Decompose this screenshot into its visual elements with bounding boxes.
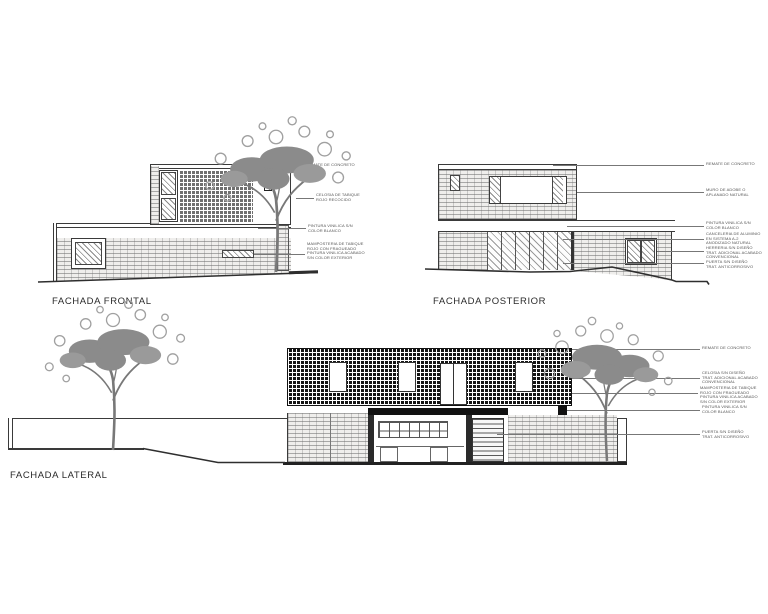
- rear-callout-leader-3: [567, 226, 704, 227]
- side-brick-wall-right: [508, 415, 617, 462]
- elevation-drawing-canvas: REMATE DE CONCRETO CELOSIA DE TABIQUE RO…: [0, 0, 768, 614]
- front-callout-leader-4: [254, 254, 305, 255]
- side-door-panel-1: [380, 447, 398, 462]
- rear-callout-leader-1: [553, 165, 704, 166]
- front-band-line: [56, 227, 291, 228]
- side-wall-left-end: [8, 418, 13, 449]
- side-tree-left: [45, 301, 184, 451]
- front-parapet-end: [53, 223, 57, 282]
- rear-callout-leader-2: [577, 192, 704, 193]
- front-callout-2: CELOSIA DE TABIQUE ROJO RECOCIDO: [316, 193, 360, 202]
- front-upper-window-pane-top: [161, 172, 176, 195]
- side-lattice-window-2: [398, 362, 416, 392]
- side-callout-4: PINTURA VINILICA S/N COLOR BLANCO: [702, 405, 747, 414]
- rear-callout-2: MURO DE ADOBE O APLANADO NATURAL: [706, 188, 749, 197]
- ground-and-trees-overlay: [0, 0, 768, 614]
- front-lower-window-pane: [75, 242, 102, 265]
- side-garage-door: [472, 418, 504, 462]
- front-ground-thick: [289, 272, 318, 273]
- rear-opening-right-panel: [552, 177, 563, 203]
- side-lattice-window-3: [515, 362, 533, 392]
- rear-right-window-pane-left: [627, 240, 641, 263]
- front-celosia-lattice: [179, 170, 253, 223]
- rear-lower-left-pier: [438, 232, 487, 270]
- side-lattice-window-1: [329, 362, 347, 392]
- side-callout-leader-2: [572, 378, 700, 379]
- side-callout-leader-3: [572, 393, 698, 394]
- rear-small-window: [450, 175, 460, 191]
- side-brick-joint: [330, 413, 331, 462]
- front-callout-leader-2: [296, 198, 314, 199]
- side-callout-1: REMATE DE CONCRETO: [702, 346, 751, 351]
- front-upper-roof-line: [151, 168, 290, 169]
- front-callout-leader-3: [258, 228, 306, 229]
- rear-opening-left-panel: [490, 177, 501, 203]
- side-callout-3: MAMPOSTERIA DE TABIQUE ROJO CON FRAGUEAD…: [700, 386, 758, 405]
- side-callout-leader-5: [497, 434, 700, 435]
- side-callout-leader-1: [572, 349, 700, 350]
- side-callout-2: CELOSIA S/N DISEÑO TRAT. ADICIONAL ACABA…: [702, 371, 758, 385]
- side-ground-thick-line: [283, 462, 627, 465]
- rear-glazing-panels: [487, 232, 571, 270]
- front-callout-3: PINTURA VINILICA S/N COLOR BLANCO: [308, 224, 353, 233]
- rear-callout-leader-5: [657, 251, 704, 252]
- front-elevation-label: FACHADA FRONTAL: [52, 296, 152, 307]
- side-lattice-door-mullion: [453, 364, 454, 404]
- side-clerestory-window-grid: [378, 421, 448, 438]
- rear-callout-6: PUERTA S/N DISEÑO TRAT. ANTICORROSIVO: [706, 260, 753, 269]
- side-wall-top-line: [8, 418, 287, 419]
- rear-right-window-pane-right: [641, 240, 655, 263]
- side-door-panel-2: [430, 447, 448, 462]
- front-parapet-top-line: [53, 223, 151, 224]
- front-slit-window-lower: [222, 250, 254, 258]
- side-end-pilaster: [617, 418, 627, 462]
- rear-callout-leader-4: [563, 239, 704, 240]
- front-callout-leader-1: [291, 166, 304, 167]
- rear-callout-leader-6: [563, 263, 704, 264]
- rear-dark-mullion: [571, 232, 574, 270]
- front-upper-window-pane-bottom: [161, 198, 176, 220]
- side-wall-bottom-line: [8, 448, 144, 450]
- front-tree-planter: [277, 225, 289, 271]
- front-callout-1: REMATE DE CONCRETO: [306, 163, 355, 168]
- front-callout-4: MAMPOSTERIA DE TABIQUE ROJO CON FRAGUEAD…: [307, 242, 365, 261]
- rear-callout-3: PINTURA VINILICA S/N COLOR BLANCO: [706, 221, 751, 230]
- side-header-beam: [368, 408, 508, 415]
- front-upper-left-pier: [151, 166, 159, 224]
- side-elevation-label: FACHADA LATERAL: [10, 470, 108, 481]
- front-slit-window: [264, 175, 272, 191]
- rear-callout-1: REMATE DE CONCRETO: [706, 162, 755, 167]
- side-callout-leader-4: [567, 410, 700, 411]
- rear-elevation-label: FACHADA POSTERIOR: [433, 296, 546, 307]
- side-callout-5: PUERTA S/N DISEÑO TRAT. ANTICORROSIVO: [702, 430, 749, 439]
- side-ground-slope: [143, 449, 285, 463]
- side-brick-wall-left: [287, 413, 368, 462]
